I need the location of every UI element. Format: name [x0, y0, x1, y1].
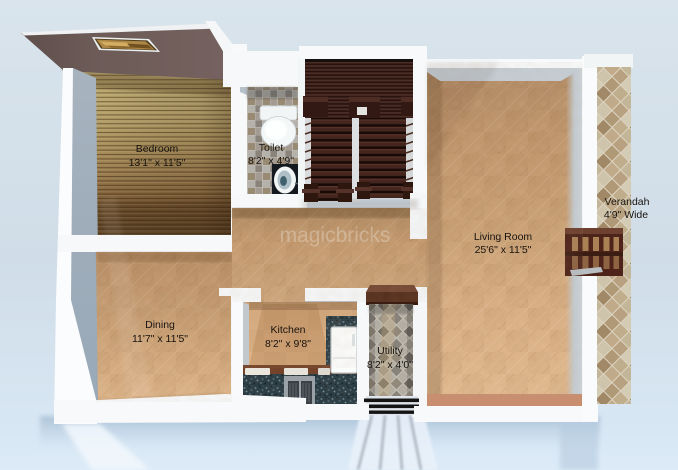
svg-text:Dining: Dining [145, 319, 175, 331]
svg-text:Bedroom: Bedroom [136, 143, 179, 155]
svg-text:4'9" Wide: 4'9" Wide [604, 209, 648, 221]
svg-text:Kitchen: Kitchen [270, 324, 305, 336]
svg-text:Verandah: Verandah [605, 196, 650, 208]
svg-text:Living Room: Living Room [474, 231, 533, 243]
svg-text:Toilet: Toilet [259, 142, 284, 154]
svg-text:8'2" x 9'8": 8'2" x 9'8" [265, 338, 311, 350]
svg-text:25'6" x 11'5": 25'6" x 11'5" [475, 244, 532, 256]
svg-text:8'2" x 4'0": 8'2" x 4'0" [367, 359, 413, 371]
svg-text:Utility: Utility [377, 345, 403, 357]
svg-text:magicbricks: magicbricks [280, 224, 391, 247]
svg-text:8'2" x 4'9": 8'2" x 4'9" [248, 155, 294, 167]
svg-text:11'7" x 11'5": 11'7" x 11'5" [132, 333, 188, 345]
svg-text:13'1" x 11'5": 13'1" x 11'5" [129, 157, 186, 169]
